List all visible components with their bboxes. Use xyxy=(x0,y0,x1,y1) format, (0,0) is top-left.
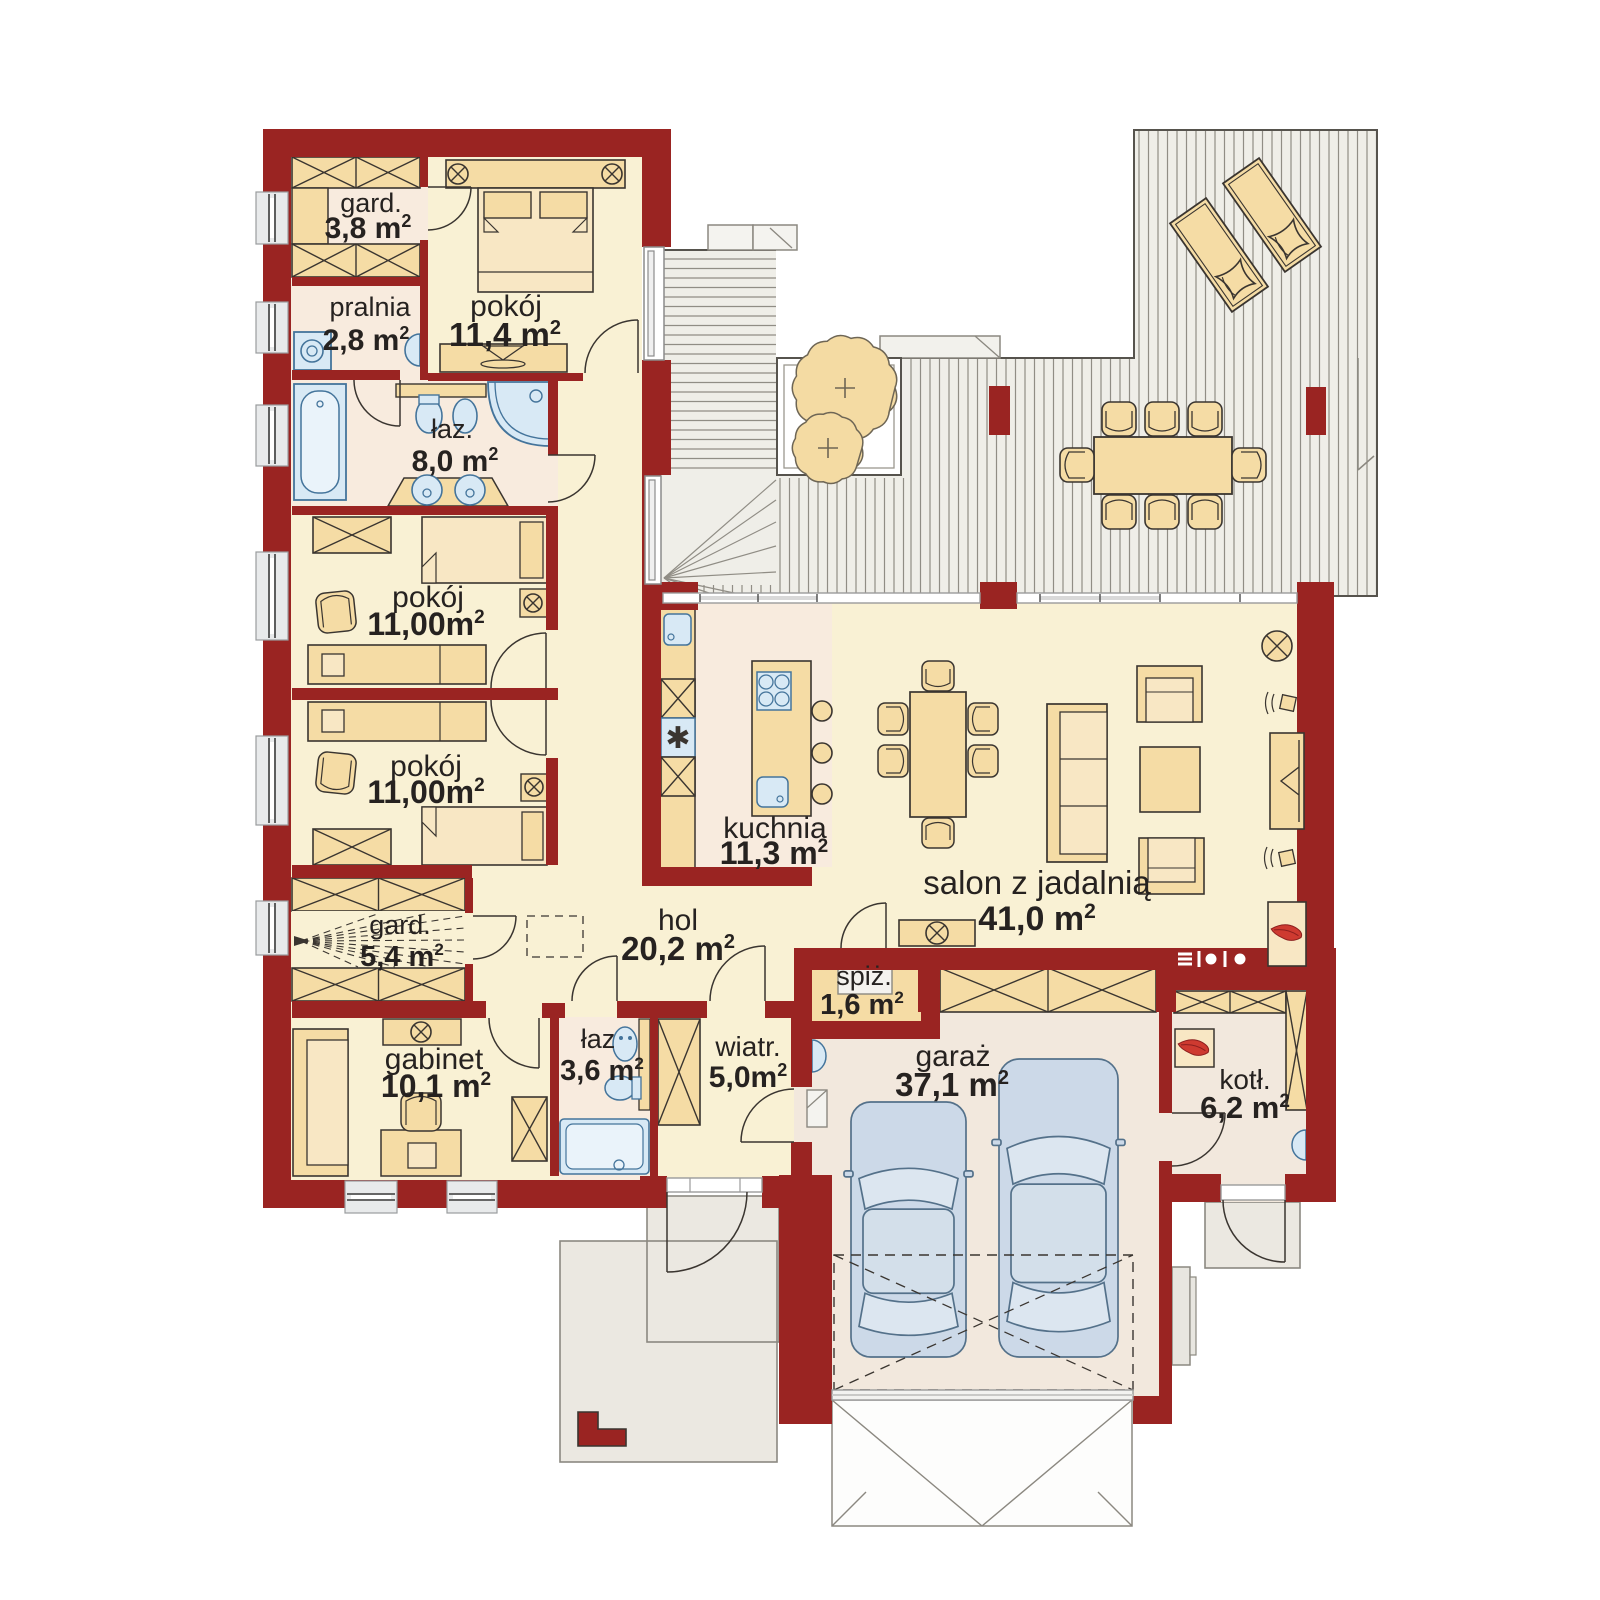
svg-text:wiatr.: wiatr. xyxy=(714,1031,780,1062)
svg-text:łaz.: łaz. xyxy=(431,414,473,444)
svg-text:5,4 m2: 5,4 m2 xyxy=(360,940,444,973)
svg-text:41,0 m2: 41,0 m2 xyxy=(978,900,1096,938)
svg-text:3,6 m2: 3,6 m2 xyxy=(560,1054,644,1087)
svg-text:łaz: łaz xyxy=(581,1024,616,1054)
svg-text:gard.: gard. xyxy=(369,910,431,940)
svg-text:✱: ✱ xyxy=(665,722,690,755)
svg-text:5,0m2: 5,0m2 xyxy=(709,1060,787,1094)
svg-text:11,00m2: 11,00m2 xyxy=(367,606,484,642)
svg-text:2,8 m2: 2,8 m2 xyxy=(323,323,410,357)
svg-text:3,8 m2: 3,8 m2 xyxy=(325,211,412,245)
svg-text:20,2 m2: 20,2 m2 xyxy=(621,930,735,967)
svg-text:11,00m2: 11,00m2 xyxy=(367,774,484,810)
svg-text:pralnia: pralnia xyxy=(329,292,411,322)
svg-text:1,6 m2: 1,6 m2 xyxy=(820,988,904,1021)
svg-text:6,2 m2: 6,2 m2 xyxy=(1200,1090,1290,1125)
svg-text:10,1 m2: 10,1 m2 xyxy=(381,1068,491,1104)
svg-text:11,3 m2: 11,3 m2 xyxy=(720,835,828,871)
svg-text:37,1 m2: 37,1 m2 xyxy=(895,1066,1009,1103)
svg-text:spiż.: spiż. xyxy=(836,961,892,991)
svg-text:8,0 m2: 8,0 m2 xyxy=(412,444,499,478)
svg-text:salon z jadalnią: salon z jadalnią xyxy=(923,864,1151,901)
svg-text:11,4 m2: 11,4 m2 xyxy=(449,316,561,353)
